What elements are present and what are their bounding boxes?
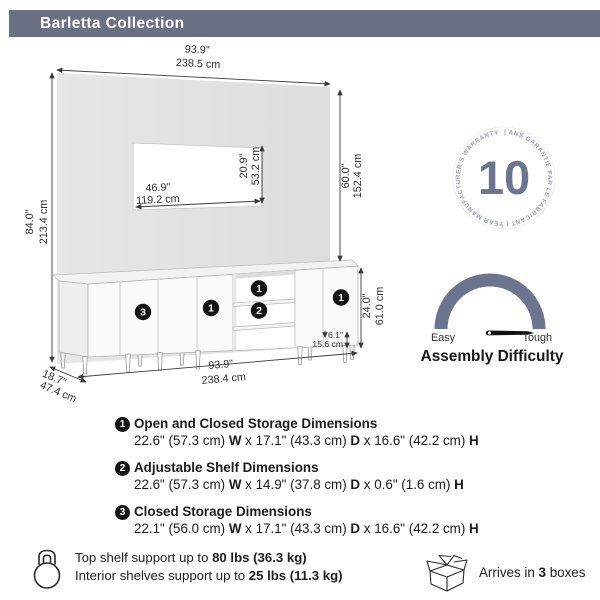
callout-1a: 1 xyxy=(208,303,214,315)
dim-opening-height-cm: 53.2 cm xyxy=(250,147,262,185)
spec-number-badge-2: 2 xyxy=(115,461,130,476)
kettlebell-icon xyxy=(30,546,64,590)
dim-console-width-in: 93.9" xyxy=(208,358,234,372)
spec-detail-1: 22.6" (57.3 cm) W x 17.1" (43.3 cm) D x … xyxy=(134,433,479,448)
gauge-title: Assembly Difficulty xyxy=(421,348,564,365)
warranty-years: 10 xyxy=(478,151,530,204)
support-line-1: Top shelf support up to 80 lbs (36.3 kg) xyxy=(75,549,343,567)
spec-item-2: 2 Adjustable Shelf Dimensions 22.6" (57.… xyxy=(115,460,585,492)
assembly-difficulty-gauge: Easy Tough Assembly Difficulty xyxy=(420,266,575,371)
spec-item-3: 3 Closed Storage Dimensions 22.1" (56.0 … xyxy=(115,504,585,536)
weight-support-note: Top shelf support up to 80 lbs (36.3 kg)… xyxy=(30,546,343,590)
gauge-tough-label: Tough xyxy=(523,332,552,344)
dim-leg-height-cm: 15.6 cm xyxy=(312,339,343,349)
spec-list: 1 Open and Closed Storage Dimensions 22.… xyxy=(115,416,585,548)
callout-1b: 1 xyxy=(256,283,262,295)
open-box-icon xyxy=(424,549,470,595)
dim-panel-height-cm: 152.4 cm xyxy=(352,154,364,198)
spec-number-badge-1: 1 xyxy=(115,417,130,432)
gauge-easy-label: Easy xyxy=(431,332,456,344)
support-line-2: Interior shelves support up to 25 lbs (1… xyxy=(75,567,343,585)
spec-detail-3: 22.1" (56.0 cm) W x 17.1" (43.3 cm) D x … xyxy=(134,521,479,536)
dim-panel-height-in: 60.0" xyxy=(340,163,352,188)
dim-console-height-in: 24.0" xyxy=(361,293,373,318)
callout-2: 2 xyxy=(256,305,262,317)
dim-overall-height-in: 84.0" xyxy=(24,209,36,234)
dim-overall-width-in: 93.9" xyxy=(184,43,210,56)
gauge-arc xyxy=(441,280,539,329)
spec-title-2: Adjustable Shelf Dimensions xyxy=(134,460,464,476)
dim-overall-width-cm: 238.5 cm xyxy=(176,57,221,71)
spec-title-1: Open and Closed Storage Dimensions xyxy=(134,416,479,432)
dim-console-height-cm: 61.0 cm xyxy=(374,287,386,325)
page-title: Barletta Collection xyxy=(9,15,185,33)
product-dimension-infographic: { "header": { "title": "Barletta Collect… xyxy=(0,0,600,600)
dim-console-width-cm: 238.4 cm xyxy=(201,371,246,387)
callout-3: 3 xyxy=(140,307,146,319)
shipping-note: Arrives in 3 boxes xyxy=(424,549,585,595)
furniture-dimension-diagram: 93.9" 238.5 cm 84.0" 213.4 cm 60.0" 152.… xyxy=(0,40,420,410)
dim-opening-height-in: 20.9" xyxy=(238,153,250,178)
header-bar: Barletta Collection xyxy=(9,10,600,37)
dim-overall-height-cm: 213.4 cm xyxy=(38,200,50,244)
dim-opening-width-cm: 119.2 cm xyxy=(136,193,180,207)
shipping-text: Arrives in 3 boxes xyxy=(479,565,585,580)
spec-item-1: 1 Open and Closed Storage Dimensions 22.… xyxy=(115,416,585,448)
callout-1c: 1 xyxy=(338,292,344,304)
spec-number-badge-3: 3 xyxy=(115,505,130,520)
spec-detail-2: 22.6" (57.3 cm) W x 14.9" (37.8 cm) D x … xyxy=(134,477,464,492)
warranty-badge: | ANS GARANTIE PAR LE FABRICANT | YEAR M… xyxy=(445,122,565,240)
spec-title-3: Closed Storage Dimensions xyxy=(134,504,479,520)
